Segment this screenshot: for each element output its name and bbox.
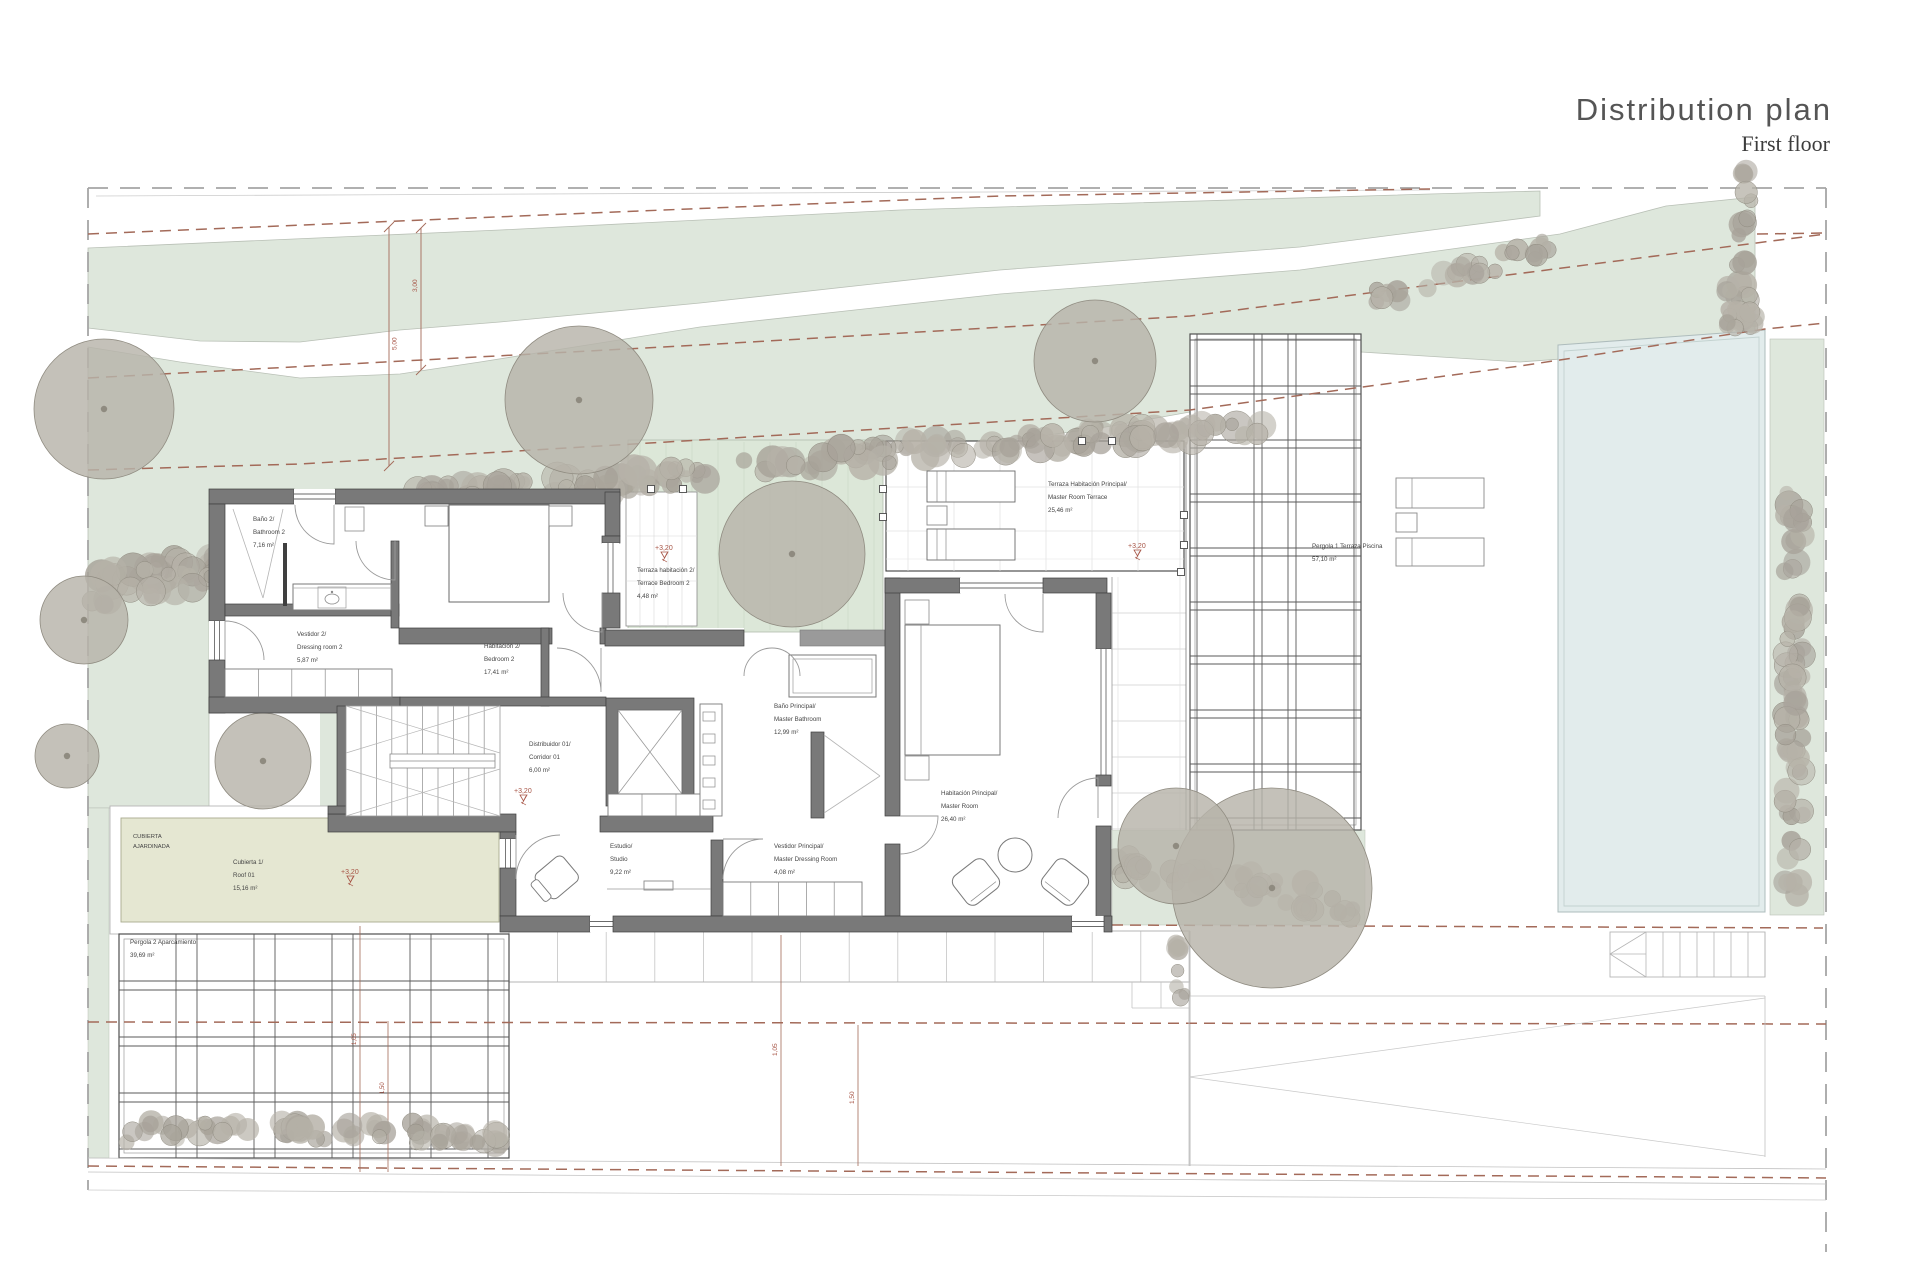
svg-text:Pergola 2 Aparcamiento: Pergola 2 Aparcamiento <box>130 939 197 946</box>
svg-text:1,05: 1,05 <box>352 1033 358 1045</box>
svg-text:Master Dressing Room: Master Dressing Room <box>774 856 837 863</box>
svg-text:1,50: 1,50 <box>849 1091 856 1104</box>
svg-text:Terraza habitación 2/: Terraza habitación 2/ <box>637 567 695 574</box>
svg-text:Baño Principal/: Baño Principal/ <box>774 703 816 710</box>
svg-text:CUBIERTA: CUBIERTA <box>133 834 162 840</box>
svg-text:6,00 m²: 6,00 m² <box>529 767 550 774</box>
svg-text:Roof 01: Roof 01 <box>233 872 255 879</box>
svg-text:Distribution plan: Distribution plan <box>1576 92 1832 127</box>
svg-text:4,48 m²: 4,48 m² <box>637 593 658 600</box>
svg-text:+3,20: +3,20 <box>1128 543 1146 550</box>
svg-text:Estudio/: Estudio/ <box>610 843 633 850</box>
svg-text:AJARDINADA: AJARDINADA <box>133 844 170 850</box>
svg-text:5,00: 5,00 <box>392 337 399 350</box>
svg-text:Terraza Habitación Principal/: Terraza Habitación Principal/ <box>1048 481 1127 488</box>
svg-text:1,05: 1,05 <box>772 1043 779 1056</box>
svg-text:+3,20: +3,20 <box>514 788 532 795</box>
svg-text:39,69 m²: 39,69 m² <box>130 952 154 959</box>
svg-text:7,16 m²: 7,16 m² <box>253 542 274 549</box>
svg-text:Corridor 01: Corridor 01 <box>529 754 561 761</box>
svg-text:5,87 m²: 5,87 m² <box>297 657 318 664</box>
svg-text:+3,20: +3,20 <box>655 545 673 552</box>
svg-text:25,46 m²: 25,46 m² <box>1048 507 1072 514</box>
svg-text:Distribuidor 01/: Distribuidor 01/ <box>529 741 571 748</box>
svg-text:Habitación 2/: Habitación 2/ <box>484 643 520 650</box>
svg-text:Bedroom 2: Bedroom 2 <box>484 656 515 663</box>
svg-text:Vestidor Principal/: Vestidor Principal/ <box>774 843 824 850</box>
svg-text:57,10 m²: 57,10 m² <box>1312 556 1336 563</box>
svg-text:26,40 m²: 26,40 m² <box>941 816 965 823</box>
svg-text:Dressing room 2: Dressing room 2 <box>297 644 343 651</box>
svg-text:Studio: Studio <box>610 856 628 863</box>
svg-text:Vestidor 2/: Vestidor 2/ <box>297 631 327 638</box>
svg-text:+3,20: +3,20 <box>341 869 359 876</box>
svg-text:Cubierta 1/: Cubierta 1/ <box>233 859 264 866</box>
svg-text:Bathroom 2: Bathroom 2 <box>253 529 286 536</box>
svg-text:Master Bathroom: Master Bathroom <box>774 716 821 723</box>
svg-text:Habitación Principal/: Habitación Principal/ <box>941 790 998 797</box>
svg-text:9,22 m²: 9,22 m² <box>610 869 631 876</box>
svg-text:17,41 m²: 17,41 m² <box>484 669 508 676</box>
svg-text:12,99 m²: 12,99 m² <box>774 729 798 736</box>
svg-text:3,00: 3,00 <box>412 279 419 292</box>
svg-text:Master Room: Master Room <box>941 803 978 810</box>
svg-text:4,08 m²: 4,08 m² <box>774 869 795 876</box>
svg-text:Pergola 1 Terraza Piscina: Pergola 1 Terraza Piscina <box>1312 543 1383 550</box>
svg-text:Terrace Bedroom 2: Terrace Bedroom 2 <box>637 580 690 587</box>
svg-text:First floor: First floor <box>1741 131 1830 156</box>
svg-text:Baño 2/: Baño 2/ <box>253 516 275 523</box>
svg-text:15,16 m²: 15,16 m² <box>233 885 257 892</box>
svg-text:1,50: 1,50 <box>380 1082 386 1094</box>
svg-text:Master Room Terrace: Master Room Terrace <box>1048 494 1108 501</box>
